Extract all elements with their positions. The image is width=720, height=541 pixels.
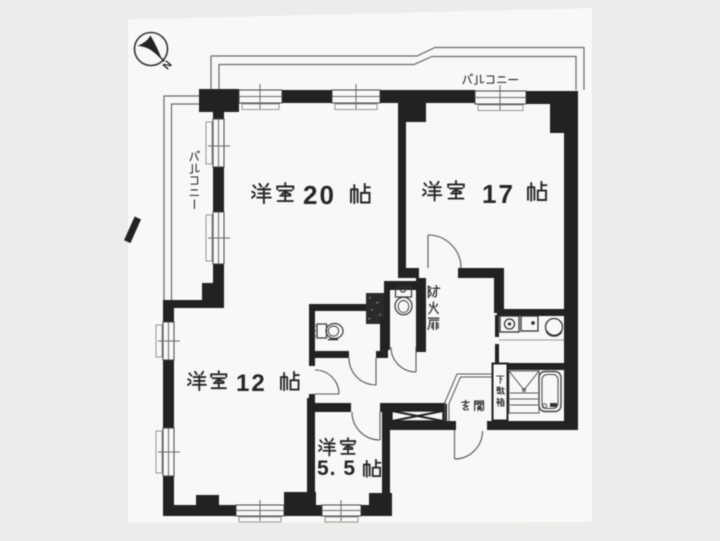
svg-text:17: 17 <box>482 179 515 209</box>
svg-text:5. 5: 5. 5 <box>317 457 356 480</box>
svg-text:20: 20 <box>303 180 336 210</box>
svg-text:12: 12 <box>236 370 267 397</box>
